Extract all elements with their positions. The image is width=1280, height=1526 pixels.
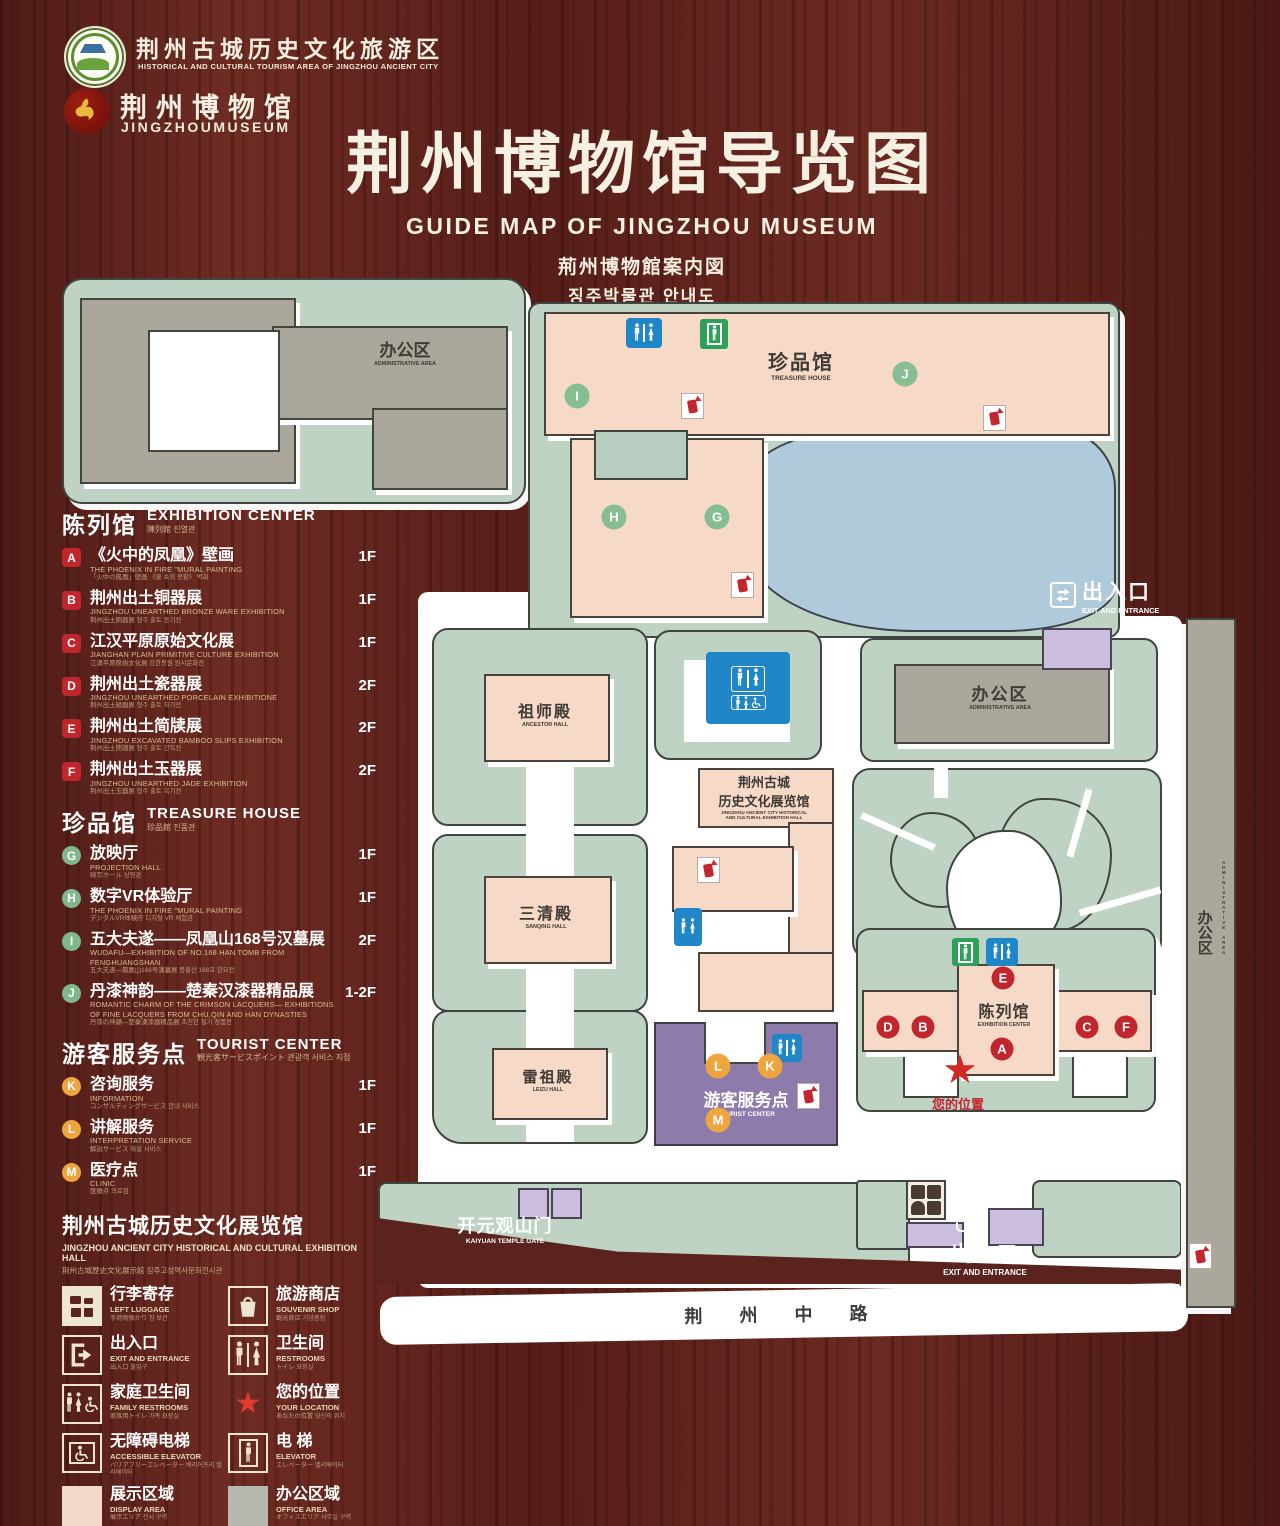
center-hall-south	[698, 952, 834, 1012]
office-area-swatch	[228, 1486, 268, 1526]
fire-extinguisher-icon	[797, 1083, 820, 1109]
garden-path	[934, 768, 948, 798]
center-hall-mid	[672, 846, 794, 912]
admin-area-tl-label: 办公区 ADMINISTRATIVE AREA	[330, 336, 480, 367]
sanqing-hall-label: 三清殿 SANQING HALL	[484, 900, 608, 930]
symbol-label: 办公区域	[276, 1486, 351, 1504]
map-badge-A: A	[991, 1038, 1014, 1061]
restroom-family-sign	[706, 652, 790, 724]
treasure-house-label: 珍品馆 TREASURE HOUSE	[741, 346, 861, 382]
fire-extinguisher-icon	[681, 393, 704, 419]
admin-area-side-label: 办公区 ADMINISTRATIVE AREA	[1190, 860, 1230, 960]
exit-top-icon	[1050, 582, 1076, 608]
your-location-star: ★	[942, 1050, 978, 1090]
elevator-sign	[700, 319, 728, 349]
treasure-house-annex	[594, 430, 688, 480]
map-badge-J: J	[893, 362, 918, 387]
exhibition-center-label: 陈列馆 EXHIBITION CENTER	[957, 998, 1051, 1028]
road-label: 荆 州 中 路	[684, 1299, 883, 1328]
center-hall-label: 荆州古城 历史文化展览馆 JINGZHOU ANCIENT CITY HISTO…	[694, 772, 834, 820]
symbol-label-en: ACCESSIBLE ELEVATOR	[110, 1452, 222, 1462]
restroom-sign	[674, 908, 702, 946]
admin-courtyard	[148, 330, 280, 452]
map-badge-G: G	[705, 505, 730, 530]
north-gate-building	[1042, 628, 1112, 670]
jingzhou-middle-road: 荆 州 中 路	[380, 1283, 1189, 1345]
symbol-label-en: ELEVATOR	[276, 1452, 343, 1462]
exit-bottom-label: 出入口 EXIT AND ENTRANCE	[920, 1238, 1050, 1277]
restroom-sign	[986, 938, 1018, 966]
symbol-label-sub: オフィスエリア 사무실 구역	[276, 1514, 351, 1522]
display-area-swatch	[62, 1486, 102, 1526]
south-wall-east	[1032, 1180, 1182, 1258]
map-badge-F: F	[1115, 1016, 1138, 1039]
admin-building-east	[372, 408, 508, 490]
left-luggage-sign	[906, 1180, 946, 1220]
map-badge-D: D	[877, 1016, 900, 1039]
admin-strip-building	[1186, 618, 1236, 1308]
map-badge-L: L	[706, 1054, 731, 1079]
admin-area-right-label: 办公区 ADMINISTRATIVE AREA	[894, 680, 1106, 711]
campus-map: 办公区 ADMINISTRATIVE AREA 珍品馆 TREASURE HOU…	[0, 0, 1280, 1451]
legend-symbol-display-area: 展示区域DISPLAY AREA展示エリア 전시 구역	[62, 1486, 222, 1526]
kaiyuan-gate-label: 开元观山门 KAIYUAN TEMPLE GATE	[420, 1212, 590, 1245]
leizu-hall-label: 雷祖殿 LEIZU HALL	[492, 1066, 604, 1093]
elevator-sign	[952, 938, 979, 966]
map-badge-K: K	[758, 1054, 783, 1079]
fire-extinguisher-icon	[731, 572, 754, 598]
exit-bottom-icon	[956, 1202, 986, 1232]
fire-extinguisher-icon	[983, 405, 1006, 431]
exhibition-notch-east	[1072, 1048, 1128, 1098]
map-badge-M: M	[706, 1108, 731, 1133]
your-location-label: 您的位置	[932, 1094, 984, 1113]
symbol-label-sub: エレベーター 엘리베이터	[276, 1462, 343, 1470]
symbol-label: 展示区域	[110, 1486, 174, 1504]
fire-extinguisher-icon	[1189, 1243, 1212, 1269]
map-badge-B: B	[912, 1016, 935, 1039]
symbol-label-en: DISPLAY AREA	[110, 1505, 174, 1515]
restroom-sign	[626, 318, 662, 348]
map-badge-H: H	[602, 505, 627, 530]
legend-symbol-office-area: 办公区域OFFICE AREAオフィスエリア 사무실 구역	[228, 1486, 376, 1526]
ancestor-hall-label: 祖师殿 ANCESTOR HALL	[484, 698, 606, 728]
exit-top-label: 出入口 EXIT AND ENTRANCE	[1082, 576, 1192, 615]
symbol-label-sub: バリアフリーエレベーター 배리어프리 엘리베이터	[110, 1462, 222, 1478]
fire-extinguisher-icon	[697, 857, 720, 883]
map-badge-C: C	[1076, 1016, 1099, 1039]
map-badge-E: E	[992, 967, 1015, 990]
symbol-label-en: OFFICE AREA	[276, 1505, 351, 1515]
south-wall-mid	[856, 1180, 910, 1250]
map-badge-I: I	[565, 384, 590, 409]
symbol-label-sub: 展示エリア 전시 구역	[110, 1514, 174, 1522]
